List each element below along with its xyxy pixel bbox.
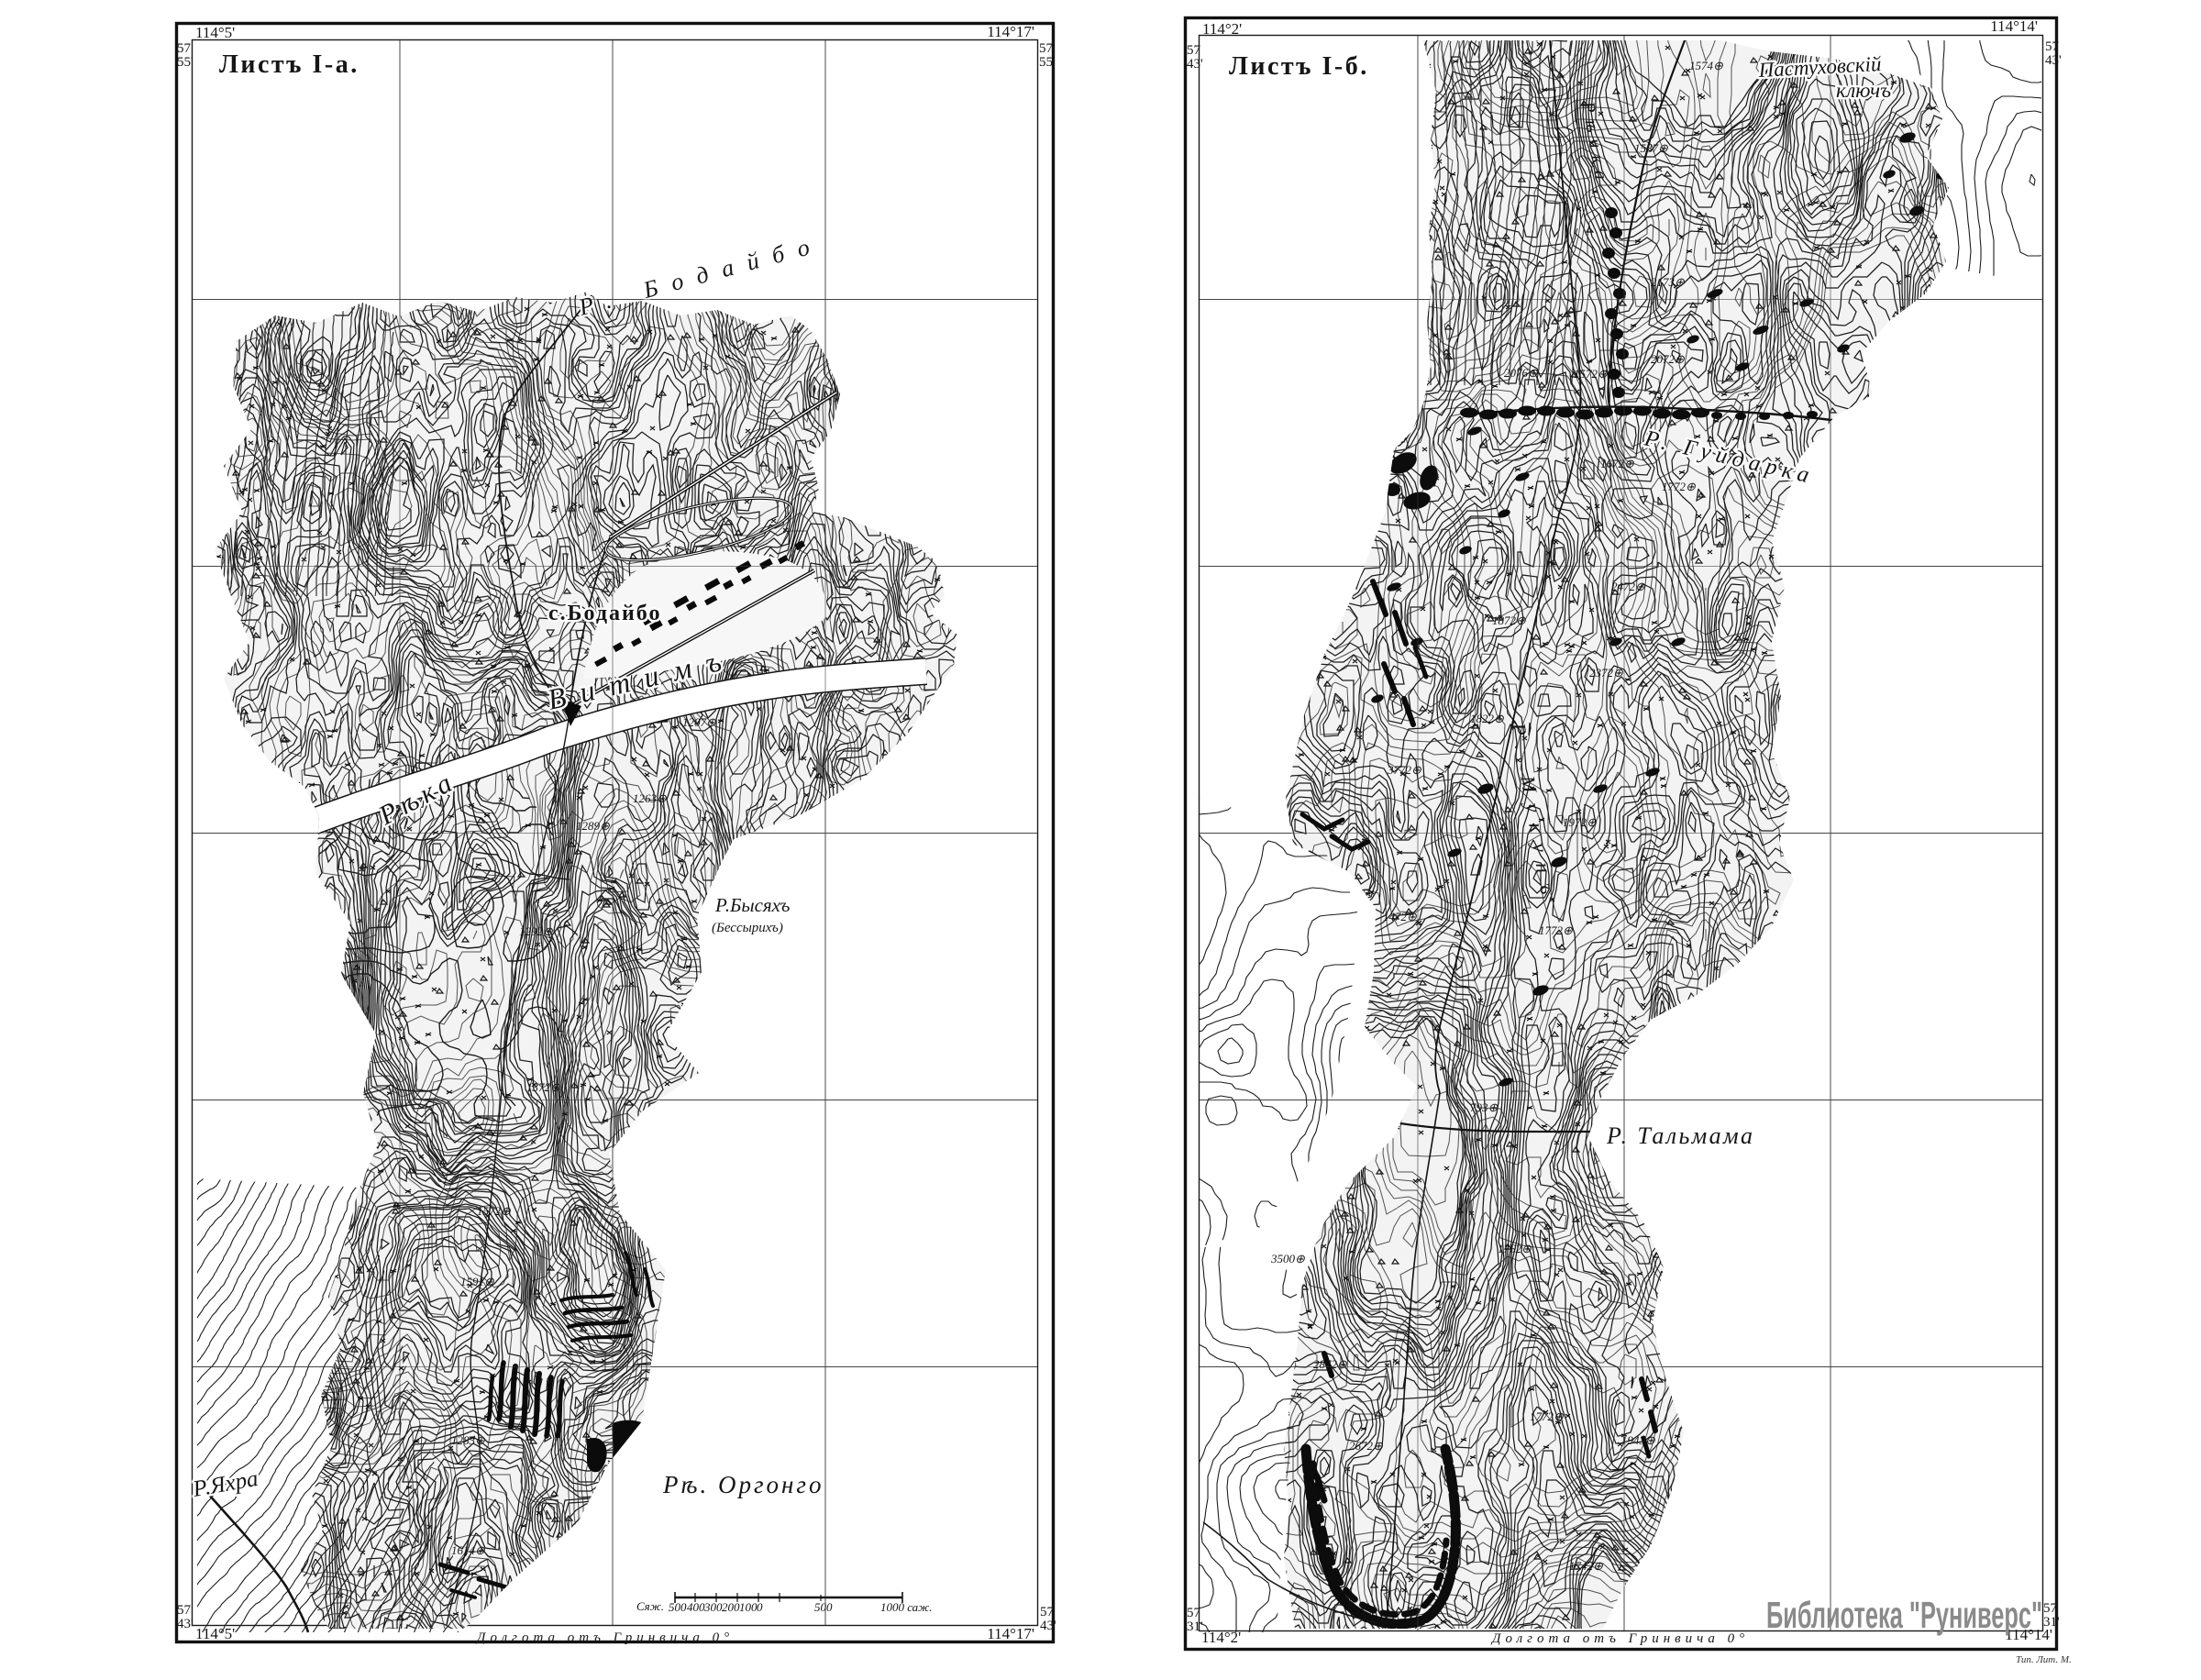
svg-text:43': 43' xyxy=(2045,53,2062,68)
svg-text:400: 400 xyxy=(687,1600,705,1614)
svg-text:1591⊕: 1591⊕ xyxy=(460,1275,494,1288)
svg-text:Сяж.: Сяж. xyxy=(636,1599,664,1613)
svg-text:500: 500 xyxy=(814,1600,833,1614)
svg-text:Долгота отъ Гринвича 0°: Долгота отъ Гринвича 0° xyxy=(1490,1631,1749,1646)
svg-text:Р. Тальмама: Р. Тальмама xyxy=(1606,1122,1755,1149)
svg-text:0: 0 xyxy=(757,1600,763,1614)
svg-text:1263⊕: 1263⊕ xyxy=(633,791,667,805)
svg-text:55': 55' xyxy=(177,55,194,70)
svg-text:1472⊕: 1472⊕ xyxy=(1383,910,1417,923)
svg-text:Р.Бысяхъ: Р.Бысяхъ xyxy=(714,894,790,916)
svg-text:57: 57 xyxy=(177,41,192,56)
svg-text:57: 57 xyxy=(177,1603,192,1618)
svg-text:1587⊕: 1587⊕ xyxy=(1634,141,1668,155)
svg-text:100: 100 xyxy=(739,1600,758,1614)
svg-text:Долгота отъ Гринвича 0°: Долгота отъ Гринвича 0° xyxy=(475,1630,734,1645)
svg-text:Листъ I-б.: Листъ I-б. xyxy=(1229,52,1369,81)
svg-text:с.Бодайбо: с.Бодайбо xyxy=(548,602,661,625)
svg-text:300: 300 xyxy=(703,1600,723,1614)
svg-text:Рѣ. Оргонго: Рѣ. Оргонго xyxy=(662,1471,824,1498)
svg-text:1289⊕: 1289⊕ xyxy=(576,819,610,833)
svg-text:57: 57 xyxy=(1039,41,1054,56)
svg-text:43': 43' xyxy=(177,1617,194,1631)
svg-text:57: 57 xyxy=(1040,1605,1055,1619)
svg-text:114°5': 114°5' xyxy=(195,24,235,41)
svg-text:3500⊕: 3500⊕ xyxy=(1270,1252,1305,1266)
svg-text:Тип. Лит. М.: Тип. Лит. М. xyxy=(2016,1654,2072,1665)
svg-text:1572⊕: 1572⊕ xyxy=(1574,367,1608,381)
svg-text:3772⊕: 3772⊕ xyxy=(1387,763,1421,777)
svg-text:1614⊕: 1614⊕ xyxy=(451,1543,485,1557)
svg-text:2173⊕: 2173⊕ xyxy=(1651,275,1685,289)
svg-text:114°2': 114°2' xyxy=(1202,20,1242,38)
svg-text:2076⊕: 2076⊕ xyxy=(1504,366,1538,380)
svg-text:114°5': 114°5' xyxy=(195,1625,235,1642)
svg-text:ключъ: ключъ xyxy=(1836,79,1891,102)
svg-text:2072⊕: 2072⊕ xyxy=(1651,352,1685,366)
svg-text:43': 43' xyxy=(1040,1619,1056,1633)
svg-text:1572⊕: 1572⊕ xyxy=(477,1204,511,1218)
svg-text:114°17': 114°17' xyxy=(987,1625,1034,1642)
svg-text:1772⊕: 1772⊕ xyxy=(1662,480,1696,493)
svg-text:57: 57 xyxy=(2045,39,2060,54)
svg-text:1742⊕: 1742⊕ xyxy=(1569,1559,1603,1573)
svg-text:114°14': 114°14' xyxy=(1990,17,2038,35)
svg-text:1822⊕: 1822⊕ xyxy=(1470,712,1504,725)
svg-text:2372⊕: 2372⊕ xyxy=(1589,666,1623,680)
svg-text:1672⊕: 1672⊕ xyxy=(1600,457,1634,470)
svg-text:1292⊕: 1292⊕ xyxy=(519,924,553,938)
svg-text:2472⊕: 2472⊕ xyxy=(1611,580,1645,593)
svg-text:1943⊕: 1943⊕ xyxy=(1621,1433,1655,1447)
svg-text:1372⊕: 1372⊕ xyxy=(526,1080,560,1094)
svg-text:1772⊕: 1772⊕ xyxy=(1530,1409,1564,1423)
svg-text:114°2': 114°2' xyxy=(1201,1629,1241,1646)
svg-text:1972⊕: 1972⊕ xyxy=(1563,815,1597,829)
svg-text:57: 57 xyxy=(1187,43,1201,58)
svg-text:43': 43' xyxy=(1187,57,1203,72)
svg-text:(Бессырихъ): (Бессырихъ) xyxy=(712,921,783,935)
svg-text:1772⊕: 1772⊕ xyxy=(1539,923,1573,937)
svg-text:1000 саж.: 1000 саж. xyxy=(880,1600,933,1614)
svg-text:1762⊕: 1762⊕ xyxy=(1498,1242,1532,1255)
svg-text:1574⊕: 1574⊕ xyxy=(1689,59,1723,72)
svg-text:2872⊕: 2872⊕ xyxy=(1313,1357,1347,1371)
svg-text:Библиотека "Руниверс": Библиотека "Руниверс" xyxy=(1766,1594,2042,1636)
svg-text:1207⊕: 1207⊕ xyxy=(682,715,716,729)
svg-text:57: 57 xyxy=(2043,1601,2058,1616)
svg-text:57: 57 xyxy=(1187,1606,1201,1620)
svg-text:793⊕: 793⊕ xyxy=(1470,1100,1499,1114)
svg-text:55': 55' xyxy=(1039,55,1056,70)
svg-text:200: 200 xyxy=(722,1600,740,1614)
svg-text:1283⊕: 1283⊕ xyxy=(451,1433,485,1447)
svg-text:1872⊕: 1872⊕ xyxy=(1492,613,1526,627)
svg-text:500: 500 xyxy=(669,1600,687,1614)
svg-text:114°17': 114°17' xyxy=(987,23,1034,40)
svg-text:Листъ I-а.: Листъ I-а. xyxy=(219,50,359,79)
svg-text:2672⊕: 2672⊕ xyxy=(1349,1439,1383,1453)
